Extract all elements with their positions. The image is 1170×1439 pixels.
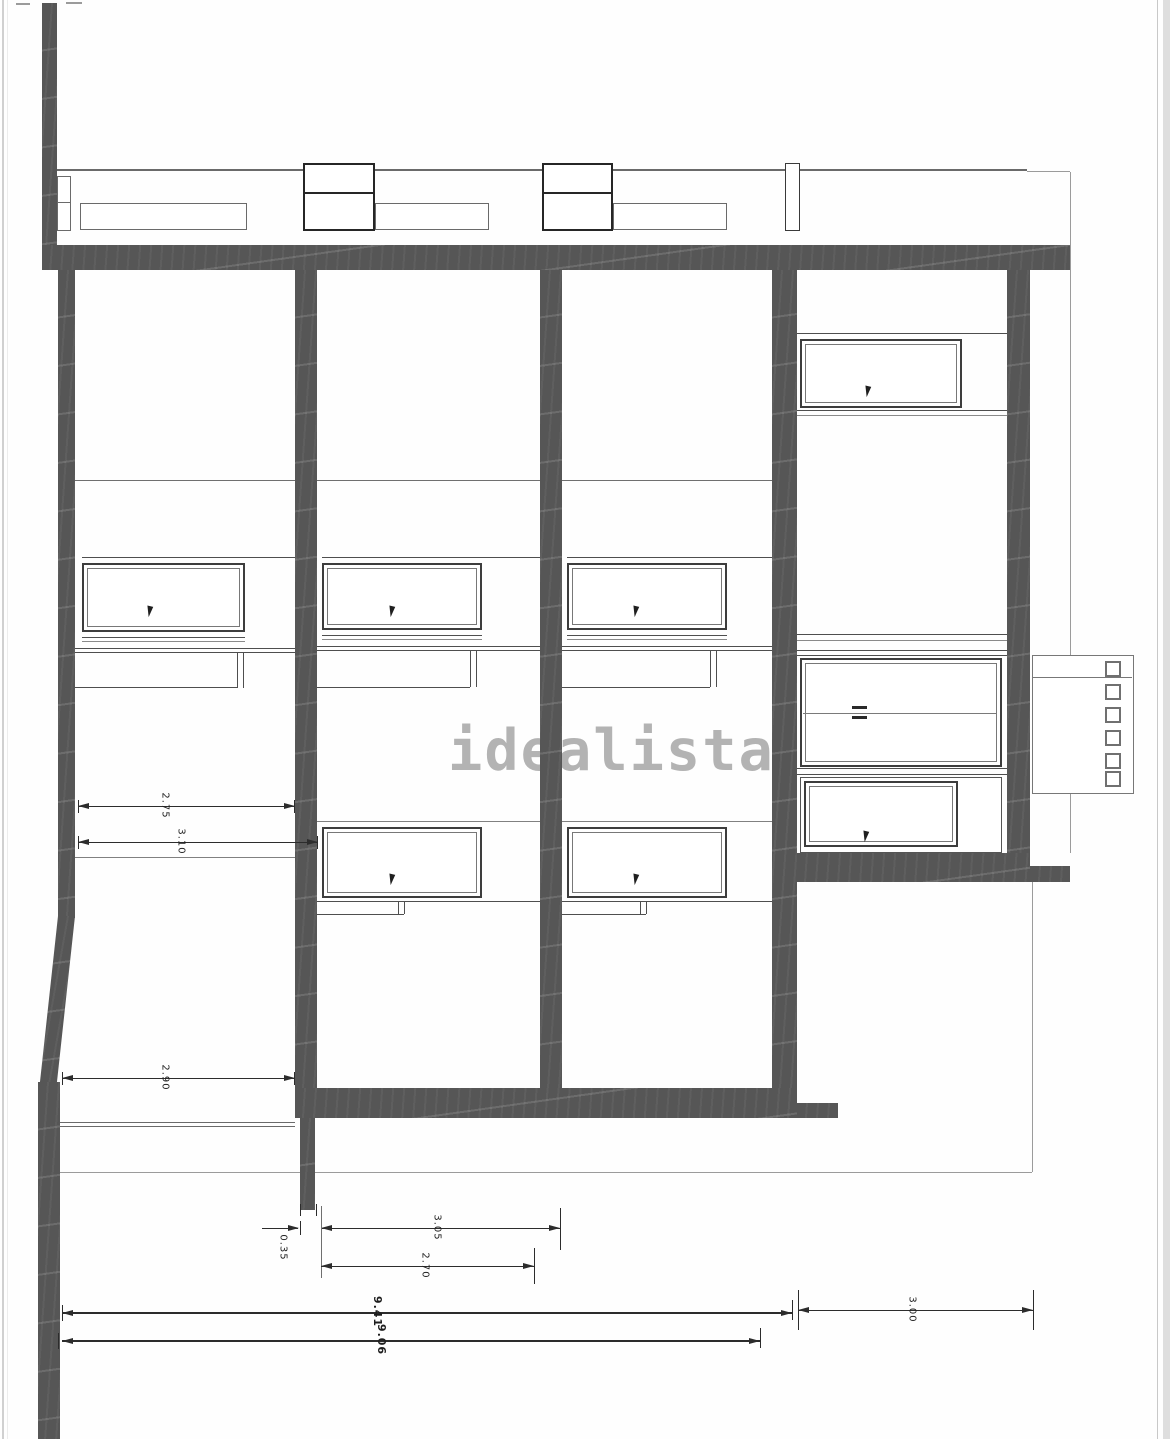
room3-window-upper — [567, 563, 727, 630]
room3-counter-line — [562, 687, 710, 688]
room2-sill-line-1 — [322, 635, 482, 636]
dim-ext-line — [534, 1248, 535, 1284]
dim-arrow — [1022, 1307, 1033, 1313]
registration-tick-1 — [16, 3, 30, 5]
facade-small-box-2 — [57, 202, 71, 231]
page-edge-right — [1157, 0, 1158, 1439]
facade-small-box-1 — [57, 176, 71, 204]
dim-line-total-inner — [62, 1340, 760, 1342]
exterior-wall-left-slant — [40, 916, 75, 1086]
room3-sill-line-2 — [567, 639, 727, 640]
balcony-baluster-icon-6 — [1105, 771, 1121, 787]
dim-tick — [760, 1328, 761, 1348]
room3-step-riser-a — [640, 901, 641, 914]
dim-ext-line — [1033, 1290, 1034, 1330]
registration-tick-2 — [66, 2, 82, 4]
bottom-wall-foot — [797, 1103, 838, 1118]
room2-ceiling-line — [317, 480, 540, 481]
room2-step-riser-b — [404, 901, 405, 914]
room1-floor-line — [58, 857, 295, 858]
room3-sill-line-1 — [567, 635, 727, 636]
room1-divider-line-b — [243, 652, 244, 688]
dim-tick — [78, 836, 79, 849]
facade-top-line-right — [1027, 171, 1070, 172]
room3-step-line-1 — [562, 901, 772, 902]
room2-window-lower — [322, 827, 482, 898]
room3-window-lower — [567, 827, 727, 898]
exterior-wall-left-mid — [58, 270, 75, 918]
balcony-baluster-icon-2 — [1105, 684, 1121, 700]
facade-window-strip-3 — [613, 203, 727, 230]
dim-arrow — [549, 1225, 560, 1231]
dim-arrow — [62, 1338, 73, 1344]
room1-ledge-line-1 — [58, 648, 295, 649]
dim-ext-tick — [300, 1204, 301, 1216]
dim-tick — [300, 1221, 301, 1235]
room4-ledge-line-1 — [797, 634, 1007, 635]
room2-sill-line-2 — [322, 639, 482, 640]
room3-lower-head-line — [562, 821, 772, 822]
page-edge-left-inner — [7, 0, 8, 1439]
dim-arrow — [78, 803, 89, 809]
dim-line-left-lower — [62, 1078, 295, 1079]
door-handle-dash-icon-2 — [852, 716, 867, 719]
dim-arrow — [288, 1225, 299, 1231]
dim-label-bay-outer: 3.05 — [432, 1214, 443, 1240]
room2-window-upper — [322, 563, 482, 630]
dim-label-total-outer: 9.41 — [371, 1296, 384, 1327]
dim-ext-tick — [316, 1204, 317, 1216]
facade-window-strip-2 — [375, 203, 489, 230]
room1-ceiling-line — [75, 480, 295, 481]
dim-label-left-lower: 2.90 — [160, 1064, 171, 1090]
dim-line-left-upper — [78, 806, 295, 807]
balcony-top-rail-line — [1032, 677, 1132, 678]
boundary-line-right-lower — [1032, 882, 1033, 1172]
room4-ledge-line-4 — [797, 655, 1007, 656]
dim-arrow — [781, 1310, 792, 1316]
partition-wall-2 — [540, 270, 562, 1088]
exterior-wall-right — [1007, 270, 1030, 872]
room2-step-line-1 — [317, 901, 540, 902]
dim-tick — [294, 800, 295, 813]
room2-ledge-line-1 — [317, 646, 540, 647]
dim-tick — [294, 1072, 295, 1085]
facade-pillar-box-1-divider — [305, 192, 373, 194]
dim-tick — [58, 1333, 59, 1349]
room1-sill-line-1 — [82, 637, 245, 638]
room4-door-mid-line — [803, 713, 996, 714]
facade-wall-band — [42, 245, 1070, 270]
dim-ext-line — [798, 1290, 799, 1330]
dim-label-bay-inner: 2.70 — [420, 1252, 431, 1278]
dim-arrow — [321, 1263, 332, 1269]
right-wall-foot — [1030, 866, 1070, 882]
facade-pillar-box-1 — [303, 163, 375, 231]
page-margin-right — [1163, 0, 1170, 1439]
facade-window-strip-1 — [80, 203, 247, 230]
room1-window-head-line — [82, 557, 295, 558]
dim-label-total-inner: 9.06 — [375, 1324, 388, 1355]
dim-tick — [317, 836, 318, 849]
partition-wall-3 — [772, 270, 797, 1088]
room1-counter-line — [58, 687, 238, 688]
balcony-baluster-icon-5 — [1105, 753, 1121, 769]
dim-arrow — [749, 1338, 760, 1344]
room1-base-line-2 — [42, 1126, 295, 1127]
room1-sill-line-2 — [82, 641, 245, 642]
room4-line-below-door-2 — [797, 774, 1007, 775]
room1-window — [82, 563, 245, 632]
door-handle-dash-icon-1 — [852, 706, 867, 709]
dim-arrow — [62, 1310, 73, 1316]
room4-line-below-door-1 — [797, 768, 1007, 769]
room2-ledge-line-2 — [317, 650, 540, 651]
room4-window-upper — [800, 339, 962, 408]
room3-step-riser-b — [646, 901, 647, 914]
page-edge-left — [2, 0, 4, 1439]
exterior-wall-left-bottom — [38, 1082, 60, 1439]
room1-divider-line-a — [237, 652, 238, 688]
dim-label-left-upper: 2.75 — [160, 792, 171, 818]
dim-arrow — [523, 1263, 534, 1269]
room3-divider-line-b — [716, 650, 717, 687]
right-room-floor-wall — [797, 853, 1030, 882]
room4-ledge-line-2 — [797, 640, 1007, 641]
dim-arrow — [78, 839, 89, 845]
room2-divider-line-a — [470, 650, 471, 687]
balcony-baluster-icon-4 — [1105, 730, 1121, 746]
room2-counter-line — [317, 687, 470, 688]
room3-ledge-line-1 — [562, 646, 772, 647]
room2-window-head-line — [322, 557, 540, 558]
room4-sill-line-2 — [797, 415, 1007, 416]
balcony-baluster-icon-1 — [1105, 661, 1121, 677]
facade-pillar-box-2-divider — [544, 192, 611, 194]
room2-lower-head-line — [317, 821, 540, 822]
watermark-text: idealista — [448, 718, 775, 784]
room3-divider-line-a — [710, 650, 711, 687]
room3-ceiling-line — [562, 480, 772, 481]
room2-step-riser-a — [398, 901, 399, 914]
exterior-wall-left-top — [42, 3, 57, 246]
dim-arrow — [321, 1225, 332, 1231]
room2-divider-line-b — [476, 650, 477, 687]
partition-wall-1 — [295, 270, 317, 1088]
room2-step-line-2 — [317, 914, 404, 915]
bottom-wall-band — [295, 1088, 797, 1118]
balcony-baluster-icon-3 — [1105, 707, 1121, 723]
room1-ledge-line-2 — [58, 652, 295, 653]
facade-pilaster — [785, 163, 800, 231]
dim-tick — [62, 1305, 63, 1321]
boundary-line-bottom — [60, 1172, 1032, 1173]
dim-ext-line — [560, 1208, 561, 1250]
room3-step-line-2 — [562, 914, 646, 915]
room3-ledge-line-2 — [562, 650, 772, 651]
room4-window-lower — [804, 781, 958, 847]
dim-arrow — [62, 1075, 73, 1081]
dim-tick — [792, 1300, 793, 1320]
dim-label-right-span: 3.00 — [907, 1296, 918, 1322]
dim-arrow — [798, 1307, 809, 1313]
dim-tick — [78, 800, 79, 813]
dim-line-left-mid — [78, 842, 318, 843]
dim-label-left-mid: 3.10 — [176, 828, 187, 854]
partition-wall-1-stub — [300, 1118, 315, 1210]
dim-label-stub: 0.35 — [278, 1234, 289, 1260]
room4-sill-line-1 — [797, 410, 1007, 411]
room4-head-line — [797, 333, 1007, 334]
room3-window-head-line — [567, 557, 772, 558]
facade-pillar-box-2 — [542, 163, 613, 231]
room1-base-line-1 — [42, 1122, 295, 1123]
floor-plan-drawing: idealista — [0, 0, 1170, 1439]
room4-ledge-line-3 — [797, 650, 1007, 651]
dim-line-total-outer — [62, 1312, 792, 1314]
dim-tick — [62, 1072, 63, 1085]
